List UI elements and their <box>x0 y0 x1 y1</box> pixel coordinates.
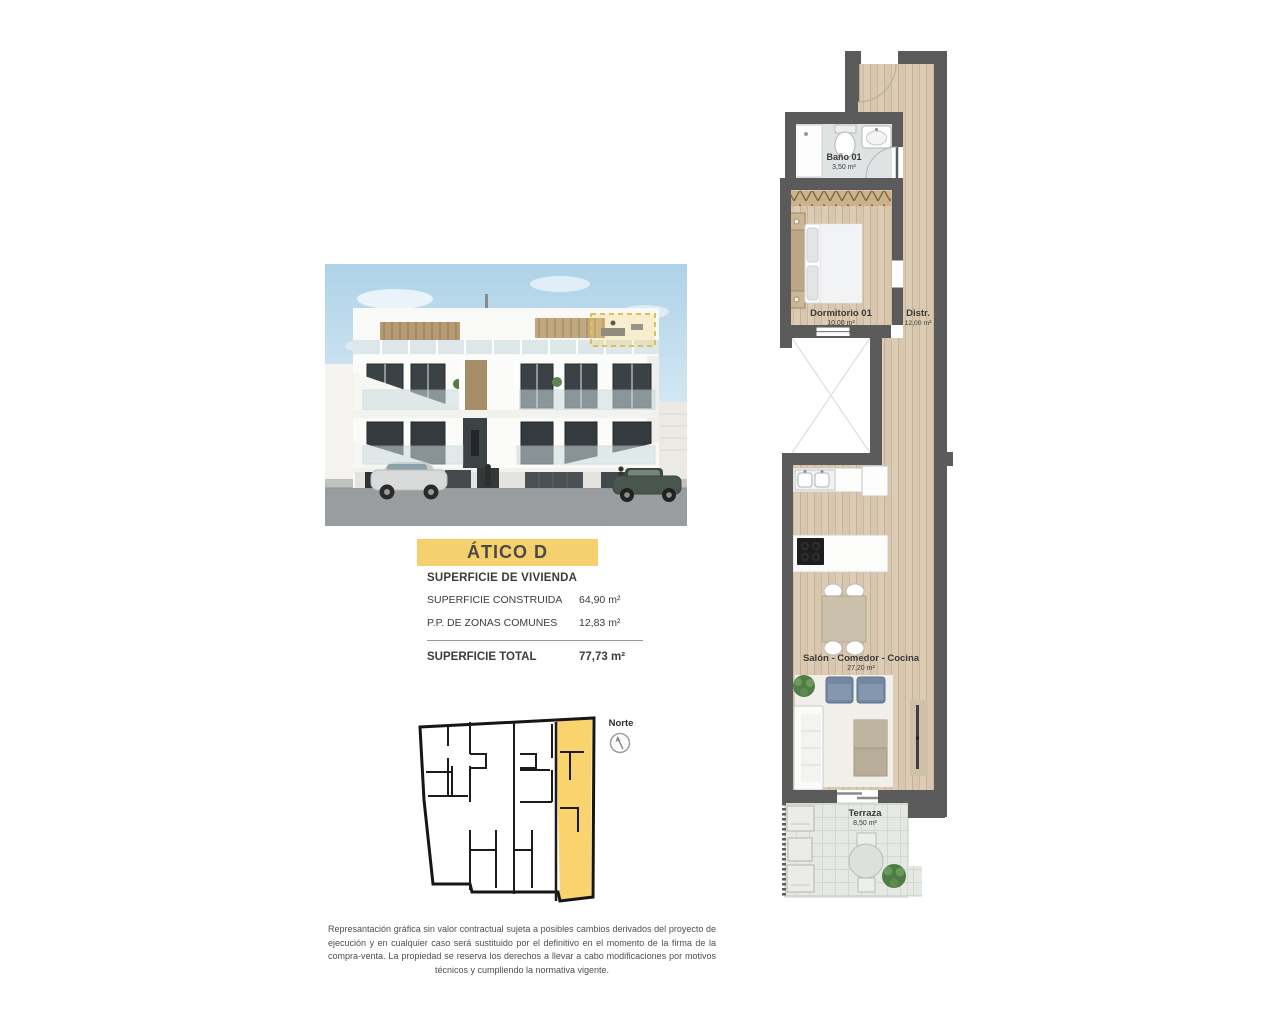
building-render <box>325 264 687 526</box>
north-compass-icon: Norte <box>609 718 634 753</box>
armchair-seat <box>828 684 851 700</box>
surface-divider <box>427 640 643 641</box>
cooktop <box>797 538 824 565</box>
surface-total-label: SUPERFICIE TOTAL <box>427 651 579 663</box>
room-area: 12,00 m² <box>905 320 933 327</box>
pillow <box>807 228 818 262</box>
dining-table <box>822 596 866 642</box>
surface-row-label: SUPERFICIE CONSTRUIDA <box>427 594 579 606</box>
north-label: Norte <box>609 718 634 729</box>
room-area: 27,20 m² <box>847 665 875 672</box>
plant-icon <box>793 675 815 697</box>
lounge-chair <box>787 806 814 831</box>
room-area: 10,00 m² <box>827 320 855 327</box>
surface-table: SUPERFICIE DE VIVIENDA SUPERFICIE CONSTR… <box>427 572 643 663</box>
surface-total-row: SUPERFICIE TOTAL 77,73 m² <box>427 651 643 663</box>
room-area: 8,50 m² <box>853 820 877 827</box>
kitchen-sink <box>798 473 812 487</box>
room-name: Terraza <box>848 808 882 819</box>
room-name: Baño 01 <box>826 152 861 162</box>
armchair-seat <box>859 684 883 700</box>
surface-row: P.P. DE ZONAS COMUNES 12,83 m² <box>427 617 643 629</box>
floorplan: Baño 01 3,50 m² Dormitorio 01 10,00 m² D… <box>758 38 970 923</box>
terrace-chair <box>858 878 875 892</box>
room-name: Distr. <box>906 308 930 319</box>
fridge <box>862 466 888 496</box>
lounge-chair <box>787 865 814 892</box>
surface-row: SUPERFICIE CONSTRUIDA 64,90 m² <box>427 594 643 606</box>
lounge-chair <box>788 838 812 861</box>
plant-icon <box>882 864 906 888</box>
unit-title: ÁTICO D <box>467 542 548 563</box>
building-facade <box>353 294 659 488</box>
unit-highlight-box <box>591 314 655 346</box>
balcony-plant-icon <box>552 377 562 387</box>
round-table <box>849 844 883 878</box>
duvet <box>820 224 862 303</box>
disclaimer-text: Represantación gráfica sin valor contrac… <box>328 923 716 977</box>
brochure-page: ÁTICO D SUPERFICIE DE VIVIENDA SUPERFICI… <box>0 0 1280 1024</box>
pillow <box>807 266 818 300</box>
wardrobe <box>787 191 891 206</box>
kitchen-sink <box>815 473 829 487</box>
person-silhouette <box>485 464 491 486</box>
room-name: Dormitorio 01 <box>810 308 872 319</box>
void-area <box>792 338 870 453</box>
room-area: 3,50 m² <box>832 164 856 171</box>
surface-row-value: 64,90 m² <box>579 594 643 606</box>
surface-row-label: P.P. DE ZONAS COMUNES <box>427 617 579 629</box>
surface-total-value: 77,73 m² <box>579 651 643 663</box>
unit-locator-map: Norte <box>408 710 648 918</box>
surface-row-value: 12,83 m² <box>579 617 643 629</box>
room-name: Salón - Comedor - Cocina <box>803 653 920 664</box>
surface-table-header: SUPERFICIE DE VIVIENDA <box>427 572 643 584</box>
unit-title-banner: ÁTICO D <box>417 539 598 566</box>
